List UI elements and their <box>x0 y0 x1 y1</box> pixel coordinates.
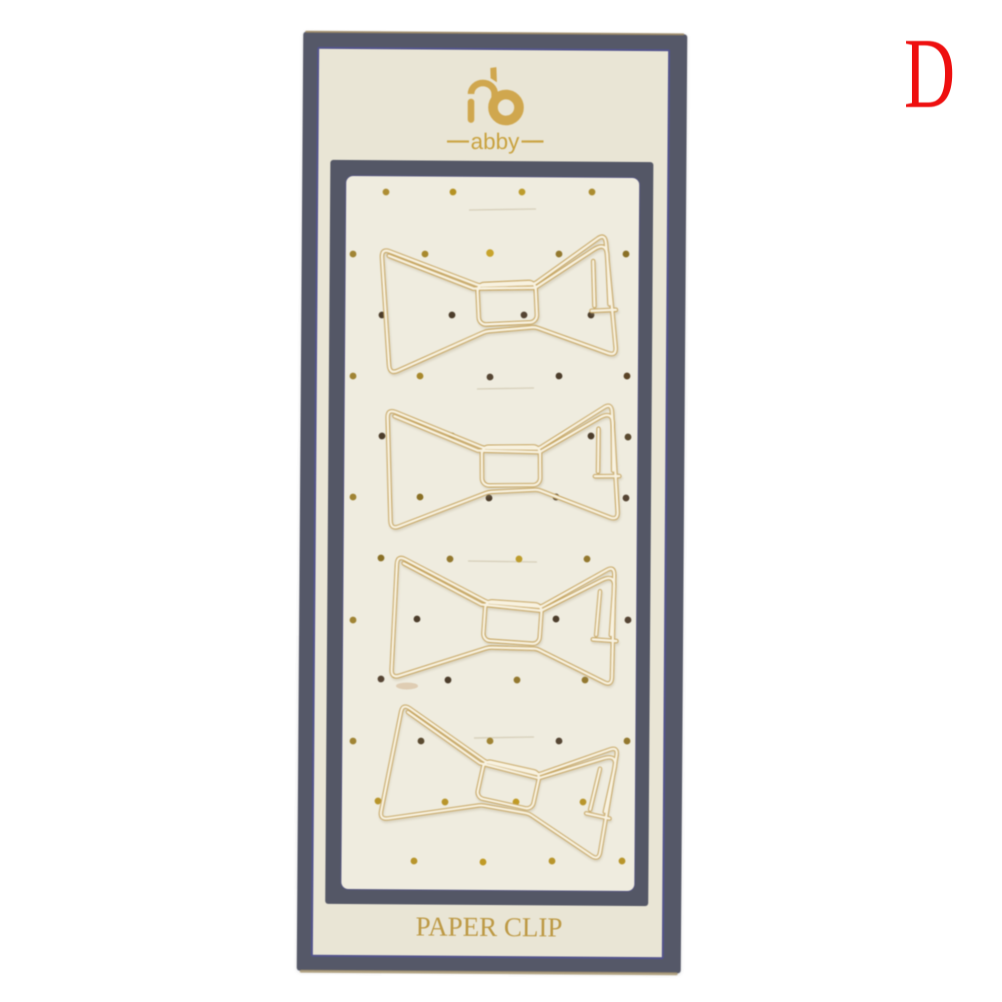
svg-text:abby: abby <box>471 129 521 154</box>
